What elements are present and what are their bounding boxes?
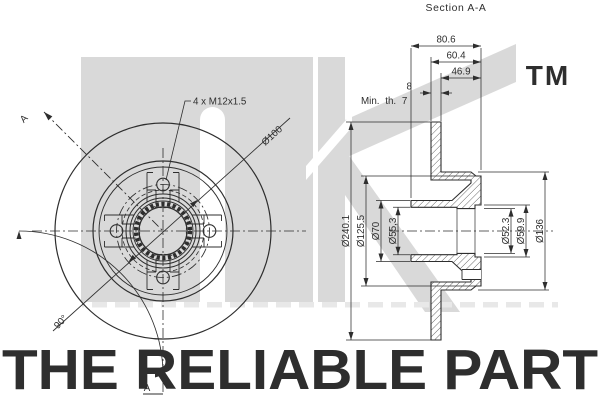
- dim-hub-dia: Ø136: [535, 218, 546, 243]
- tagline-watermark: THE RELIABLE PART: [2, 338, 598, 400]
- dim-tube-dia: Ø70: [371, 221, 382, 240]
- technical-drawing-canvas: TM THE RELIABLE PART: [0, 0, 600, 400]
- section-label-bottom: A: [144, 383, 151, 394]
- dim-outer-dia: Ø240.1: [341, 215, 352, 247]
- dim-disc-thickness: 8: [407, 82, 413, 93]
- watermark-micro-strip: [82, 302, 558, 308]
- dim-bore-dia-center: Ø52.3: [501, 217, 512, 244]
- flange-bolt-hole-cut: [462, 270, 481, 280]
- thread-note-label: 4 x M12x1.5: [193, 97, 247, 108]
- nk-logo-k-stem: [318, 57, 345, 302]
- dim-overall-width: 80.6: [436, 35, 456, 46]
- drawing-page: TM THE RELIABLE PART: [0, 0, 600, 400]
- dim-bore-dia-left: Ø55,3: [388, 217, 399, 244]
- dim-hub-width: 60.4: [446, 51, 466, 62]
- min-thickness-note: Min. th. 7: [361, 96, 407, 107]
- trademark-text: TM: [526, 60, 570, 91]
- section-title: Section A-A: [426, 3, 487, 14]
- dim-hub-inner-width: 46.9: [451, 67, 470, 78]
- dim-flange-dia: Ø125.5: [356, 214, 367, 247]
- dim-seal-dia: Ø59.9: [516, 218, 527, 245]
